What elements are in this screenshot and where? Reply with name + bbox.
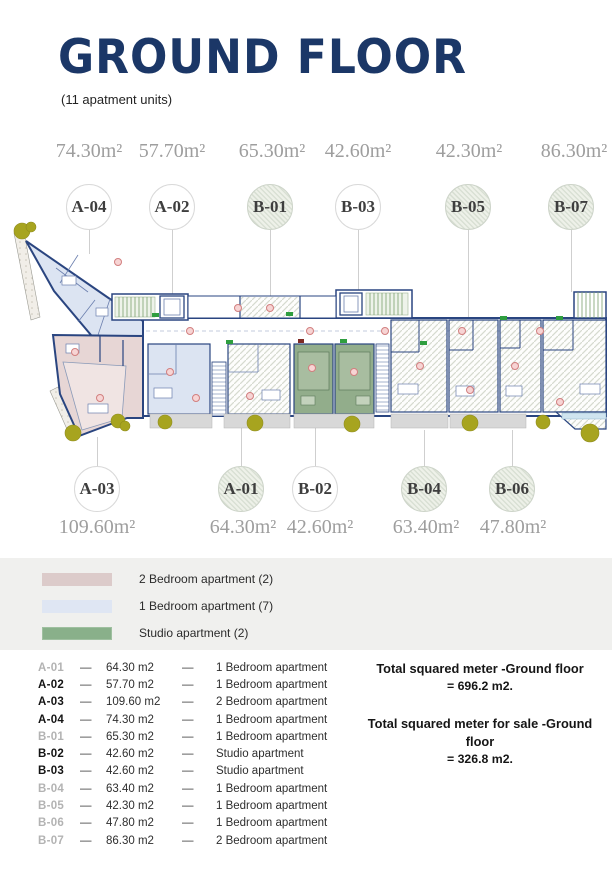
unit-code: A-04 (38, 714, 80, 726)
unit-code: A-03 (38, 696, 80, 708)
total-ground-floor-title: Total squared meter -Ground floor (352, 660, 608, 678)
connector-line-a03 (97, 437, 98, 467)
unit-area: 47.80 m2 (106, 817, 182, 829)
unit-type: 1 Bedroom apartment (216, 679, 327, 691)
area-label-b02: 42.60m² (260, 516, 380, 539)
total-for-sale-value: = 326.8 m2. (352, 751, 608, 768)
unit-code: B-02 (38, 748, 80, 760)
stair-elevator-cores (112, 290, 606, 320)
alarm-marker (298, 339, 304, 343)
unit-badge-a01: A-01 (218, 466, 264, 512)
area-label-b06: 47.80m² (453, 516, 573, 539)
unit-code: B-03 (38, 765, 80, 777)
legend-item-studio: Studio apartment (2) (42, 626, 248, 640)
table-row: B-07 — 86.30 m2 — 2 Bedroom apartment (38, 832, 327, 849)
separator: — (182, 679, 216, 691)
top-row-units (188, 296, 336, 318)
separator: — (182, 835, 216, 847)
unit-type: 2 Bedroom apartment (216, 696, 327, 708)
unit-badge-b02: B-02 (292, 466, 338, 512)
legend: 2 Bedroom apartment (2) 1 Bedroom apartm… (0, 558, 612, 650)
unit-type: Studio apartment (216, 765, 327, 777)
totals-block: Total squared meter -Ground floor = 696.… (352, 660, 608, 788)
unit-badge-b04: B-04 (401, 466, 447, 512)
unit-type: 1 Bedroom apartment (216, 817, 327, 829)
table-row: B-06 — 47.80 m2 — 1 Bedroom apartment (38, 815, 327, 832)
table-row: A-04 — 74.30 m2 — 1 Bedroom apartment (38, 711, 327, 728)
separator: — (182, 817, 216, 829)
trees (14, 222, 599, 442)
page-title: GROUND FLOOR (58, 30, 467, 85)
unit-a03 (53, 335, 143, 436)
unit-badge-b01: B-01 (247, 184, 293, 230)
unit-badge-b06: B-06 (489, 466, 535, 512)
connector-line-b02 (315, 416, 316, 466)
area-label-b05: 42.30m² (409, 140, 529, 163)
connector-line-b03 (358, 230, 359, 336)
separator: — (182, 748, 216, 760)
unit-type: 1 Bedroom apartment (216, 662, 327, 674)
legend-label-1bedroom: 1 Bedroom apartment (7) (139, 599, 273, 613)
unit-type: 1 Bedroom apartment (216, 800, 327, 812)
table-row: B-01 — 65.30 m2 — 1 Bedroom apartment (38, 728, 327, 745)
separator: — (80, 783, 106, 795)
table-row: A-01 — 64.30 m2 — 1 Bedroom apartment (38, 659, 327, 676)
unit-type: 1 Bedroom apartment (216, 731, 327, 743)
unit-code: A-01 (38, 662, 80, 674)
main-building-band (143, 318, 606, 416)
unit-area: 57.70 m2 (106, 679, 182, 691)
connector-line-b01 (270, 230, 271, 296)
table-row: A-02 — 57.70 m2 — 1 Bedroom apartment (38, 676, 327, 693)
separator: — (80, 679, 106, 691)
unit-area: 65.30 m2 (106, 731, 182, 743)
separator: — (80, 714, 106, 726)
unit-code: B-01 (38, 731, 80, 743)
unit-code: B-05 (38, 800, 80, 812)
legend-swatch-studio (42, 627, 112, 640)
legend-label-2bedroom: 2 Bedroom apartment (2) (139, 572, 273, 586)
legend-item-1bedroom: 1 Bedroom apartment (7) (42, 599, 273, 613)
separator: — (182, 783, 216, 795)
separator: — (182, 714, 216, 726)
page-subtitle: (11 apatment units) (61, 92, 172, 107)
legend-label-studio: Studio apartment (2) (139, 626, 248, 640)
bottom-row-units (148, 320, 606, 429)
legend-item-2bedroom: 2 Bedroom apartment (2) (42, 572, 273, 586)
unit-area: 42.60 m2 (106, 748, 182, 760)
connector-line-a02 (172, 228, 173, 330)
legend-swatch-1bedroom (42, 600, 112, 613)
area-label-a03: 109.60m² (37, 516, 157, 539)
ground-terraces (150, 414, 526, 428)
unit-code: B-06 (38, 817, 80, 829)
unit-badge-b07: B-07 (548, 184, 594, 230)
area-label-b07: 86.30m² (514, 140, 612, 163)
total-ground-floor-value: = 696.2 m2. (352, 678, 608, 695)
area-label-b03: 42.60m² (298, 140, 418, 163)
unit-area: 64.30 m2 (106, 662, 182, 674)
table-row: B-05 — 42.30 m2 — 1 Bedroom apartment (38, 797, 327, 814)
connector-line-b07 (571, 228, 572, 292)
connector-line-b05 (468, 228, 469, 320)
terrace-strips (14, 227, 79, 436)
unit-type: 1 Bedroom apartment (216, 783, 327, 795)
unit-area: 42.60 m2 (106, 765, 182, 777)
separator: — (182, 662, 216, 674)
unit-area: 74.30 m2 (106, 714, 182, 726)
separator: — (182, 765, 216, 777)
table-row: B-03 — 42.60 m2 — Studio apartment (38, 763, 327, 780)
unit-area: 63.40 m2 (106, 783, 182, 795)
separator: — (80, 748, 106, 760)
table-row: A-03 — 109.60 m2 — 2 Bedroom apartment (38, 694, 327, 711)
legend-swatch-2bedroom (42, 573, 112, 586)
connector-line-b06 (512, 430, 513, 466)
separator: — (80, 696, 106, 708)
connector-line-b04 (424, 430, 425, 466)
separator: — (80, 817, 106, 829)
connector-line-a01 (241, 416, 242, 466)
unit-badge-a04: A-04 (66, 184, 112, 230)
apartment-table: A-01 — 64.30 m2 — 1 Bedroom apartment A-… (38, 659, 327, 849)
unit-badge-a02: A-02 (149, 184, 195, 230)
unit-type: 2 Bedroom apartment (216, 835, 327, 847)
unit-badge-b05: B-05 (445, 184, 491, 230)
separator: — (182, 800, 216, 812)
unit-type: Studio apartment (216, 748, 327, 760)
unit-badge-a03: A-03 (74, 466, 120, 512)
separator: — (80, 765, 106, 777)
separator: — (182, 696, 216, 708)
separator: — (80, 835, 106, 847)
separator: — (80, 800, 106, 812)
unit-code: B-07 (38, 835, 80, 847)
unit-type: 1 Bedroom apartment (216, 714, 327, 726)
wing-unit-a04 (26, 241, 143, 342)
unit-area: 86.30 m2 (106, 835, 182, 847)
separator: — (80, 731, 106, 743)
separator: — (80, 662, 106, 674)
connector-line-a04 (89, 228, 90, 254)
unit-code: B-04 (38, 783, 80, 795)
table-row: B-04 — 63.40 m2 — 1 Bedroom apartment (38, 780, 327, 797)
table-row: B-02 — 42.60 m2 — Studio apartment (38, 745, 327, 762)
unit-area: 42.30 m2 (106, 800, 182, 812)
unit-code: A-02 (38, 679, 80, 691)
red-dots (72, 259, 564, 406)
unit-area: 109.60 m2 (106, 696, 182, 708)
total-for-sale-title: Total squared meter for sale -Ground flo… (352, 715, 608, 751)
unit-badge-b03: B-03 (335, 184, 381, 230)
separator: — (182, 731, 216, 743)
